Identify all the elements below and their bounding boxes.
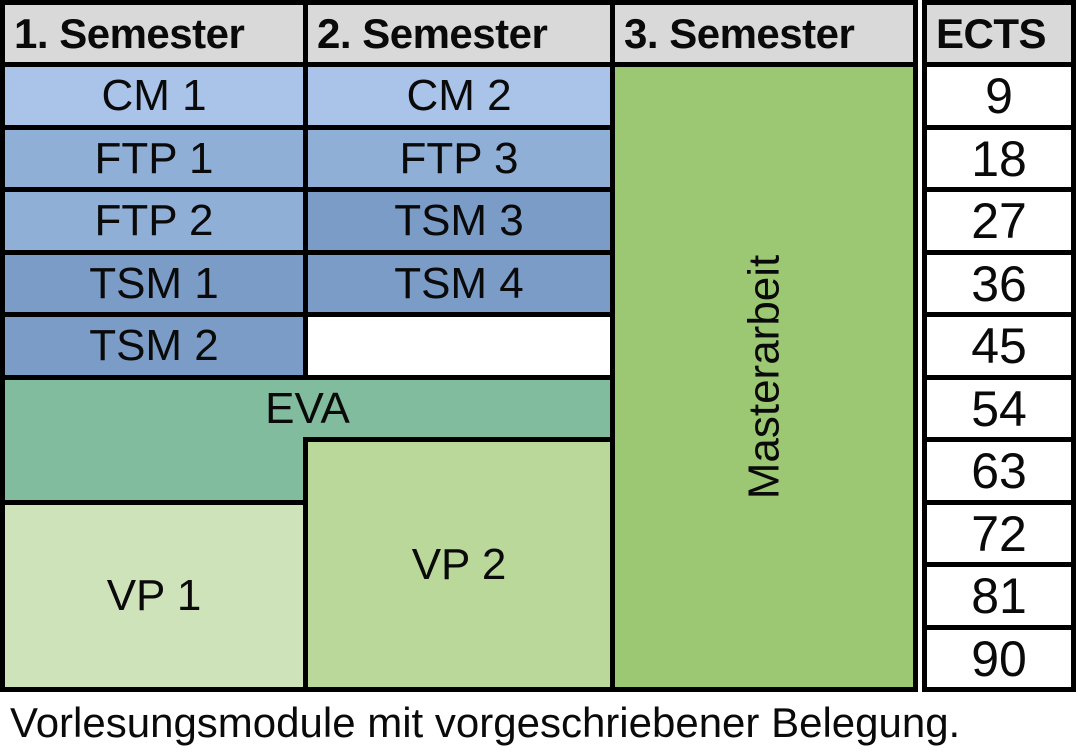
caption: Vorlesungsmodule mit vorgeschriebener Be… bbox=[10, 698, 960, 748]
ects-cell-63: 63 bbox=[927, 442, 1071, 500]
header-semester-2: 2. Semester bbox=[308, 5, 610, 62]
ects-cell-18: 18 bbox=[927, 130, 1071, 187]
module-cell-tsm4: TSM 4 bbox=[308, 255, 610, 312]
ects-cell-9: 9 bbox=[927, 67, 1071, 125]
ects-cell-72: 72 bbox=[927, 505, 1071, 562]
ects-cell-54: 54 bbox=[927, 380, 1071, 437]
ects-cell-81: 81 bbox=[927, 567, 1071, 625]
module-cell-tsm2: TSM 2 bbox=[5, 317, 303, 375]
empty-cell bbox=[308, 317, 610, 375]
masterarbeit-label: Masterarbeit bbox=[742, 255, 786, 500]
module-cell-cm1: CM 1 bbox=[5, 67, 303, 125]
ects-cell-45: 45 bbox=[927, 317, 1071, 375]
module-cell-vp2: VP 2 bbox=[308, 442, 610, 687]
header-semester-1: 1. Semester bbox=[5, 5, 303, 62]
module-cell-ftp3: FTP 3 bbox=[308, 130, 610, 187]
module-cell-tsm3: TSM 3 bbox=[308, 192, 610, 250]
header-ects: ECTS bbox=[927, 5, 1071, 62]
module-cell-vp1: VP 1 bbox=[5, 505, 303, 687]
module-cell-cm2: CM 2 bbox=[308, 67, 610, 125]
module-cell-eva: EVA bbox=[5, 380, 610, 437]
ects-cell-27: 27 bbox=[927, 192, 1071, 250]
module-cell-ftp2: FTP 2 bbox=[5, 192, 303, 250]
curriculum-diagram: 1. Semester 2. Semester 3. Semester CM 1… bbox=[0, 0, 1081, 754]
module-cell-ftp1: FTP 1 bbox=[5, 130, 303, 187]
header-semester-3: 3. Semester bbox=[615, 5, 913, 62]
module-cell-masterarbeit: Masterarbeit bbox=[615, 67, 913, 687]
ects-table: ECTS 9 18 27 36 45 54 63 72 81 90 bbox=[922, 0, 1076, 692]
semester-table: 1. Semester 2. Semester 3. Semester CM 1… bbox=[0, 0, 918, 692]
ects-cell-90: 90 bbox=[927, 630, 1071, 687]
module-cell-tsm1: TSM 1 bbox=[5, 255, 303, 312]
ects-cell-36: 36 bbox=[927, 255, 1071, 312]
module-cell-eva-extension bbox=[5, 437, 303, 500]
